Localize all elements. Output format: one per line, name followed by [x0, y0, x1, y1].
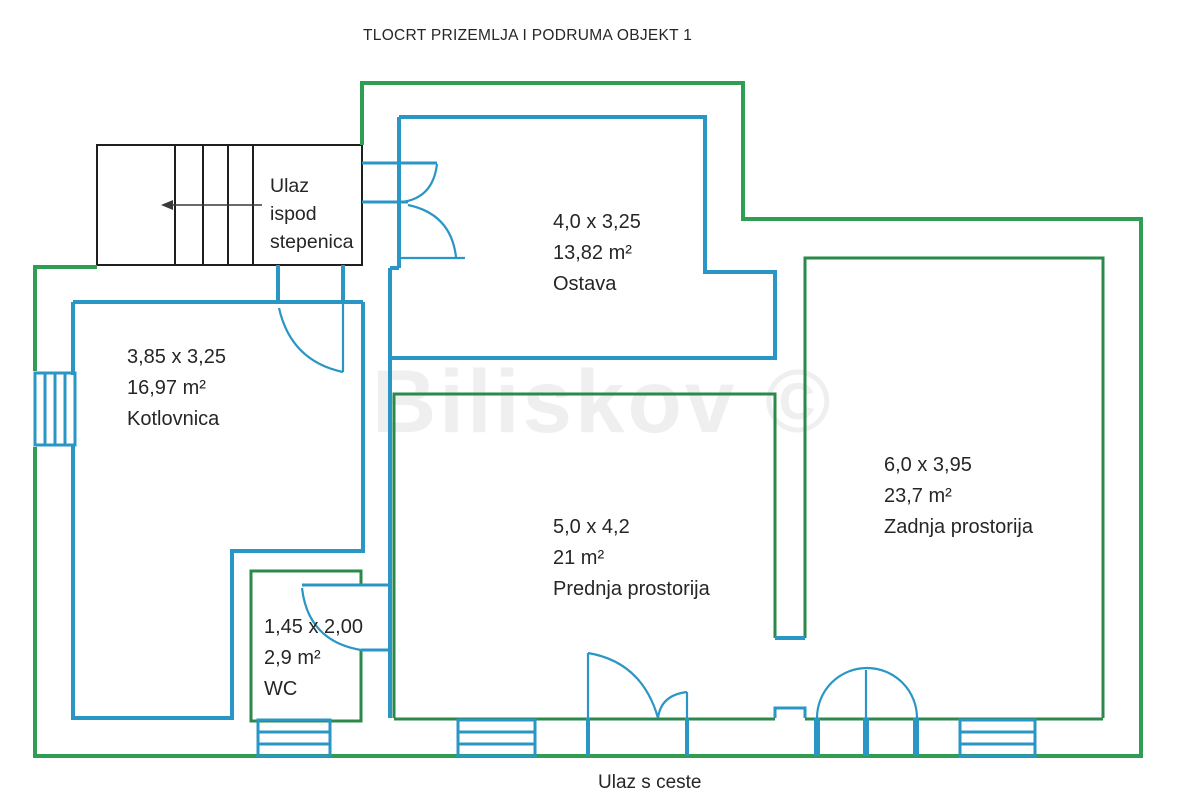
room-dims: 5,0 x 4,2	[553, 512, 710, 543]
door-entrance-arch	[817, 668, 917, 718]
window-bottom-right	[960, 720, 1035, 756]
window-left	[35, 373, 75, 445]
plan-title: TLOCRT PRIZEMLJA I PODRUMA OBJEKT 1	[363, 27, 692, 45]
room-name: Zadnja prostorija	[884, 512, 1033, 543]
room-area: 2,9 m²	[264, 643, 363, 674]
stairs-label-line: Ulaz	[270, 172, 353, 200]
room-name: Ostava	[553, 269, 641, 300]
room-label-ostava: 4,0 x 3,25 13,82 m² Ostava	[553, 207, 641, 300]
floor-plan: Biliskov © TLOCR	[0, 0, 1188, 809]
room-dims: 1,45 x 2,00	[264, 612, 363, 643]
stairs-entrance-label: Ulaz ispod stepenica	[270, 172, 353, 256]
room-area: 13,82 m²	[553, 238, 641, 269]
room-name: Kotlovnica	[127, 404, 226, 435]
double-door-jambs	[588, 718, 687, 756]
wall-notch	[775, 708, 805, 718]
door-kotlovnica	[279, 302, 343, 372]
street-entrance-label: Ulaz s ceste	[598, 772, 701, 794]
room-dims: 6,0 x 3,95	[884, 450, 1033, 481]
stairs-label-line: stepenica	[270, 228, 353, 256]
room-label-wc: 1,45 x 2,00 2,9 m² WC	[264, 612, 363, 705]
door-vestibule-large	[400, 205, 465, 258]
room-dims: 4,0 x 3,25	[553, 207, 641, 238]
room-label-kotlovnica: 3,85 x 3,25 16,97 m² Kotlovnica	[127, 342, 226, 435]
room-name: WC	[264, 674, 363, 705]
room-name: Prednja prostorija	[553, 574, 710, 605]
door-prednja-double	[588, 653, 687, 718]
room-area: 23,7 m²	[884, 481, 1033, 512]
room-area: 16,97 m²	[127, 373, 226, 404]
window-bottom-wc	[258, 720, 330, 756]
room-label-zadnja-prostorija: 6,0 x 3,95 23,7 m² Zadnja prostorija	[884, 450, 1033, 543]
window-bottom-left	[458, 720, 535, 756]
entrance-threshold	[817, 718, 916, 756]
stairs-label-line: ispod	[270, 200, 353, 228]
room-dims: 3,85 x 3,25	[127, 342, 226, 373]
room-area: 21 m²	[553, 543, 710, 574]
door-vestibule-small	[402, 164, 437, 202]
room-label-prednja-prostorija: 5,0 x 4,2 21 m² Prednja prostorija	[553, 512, 710, 605]
